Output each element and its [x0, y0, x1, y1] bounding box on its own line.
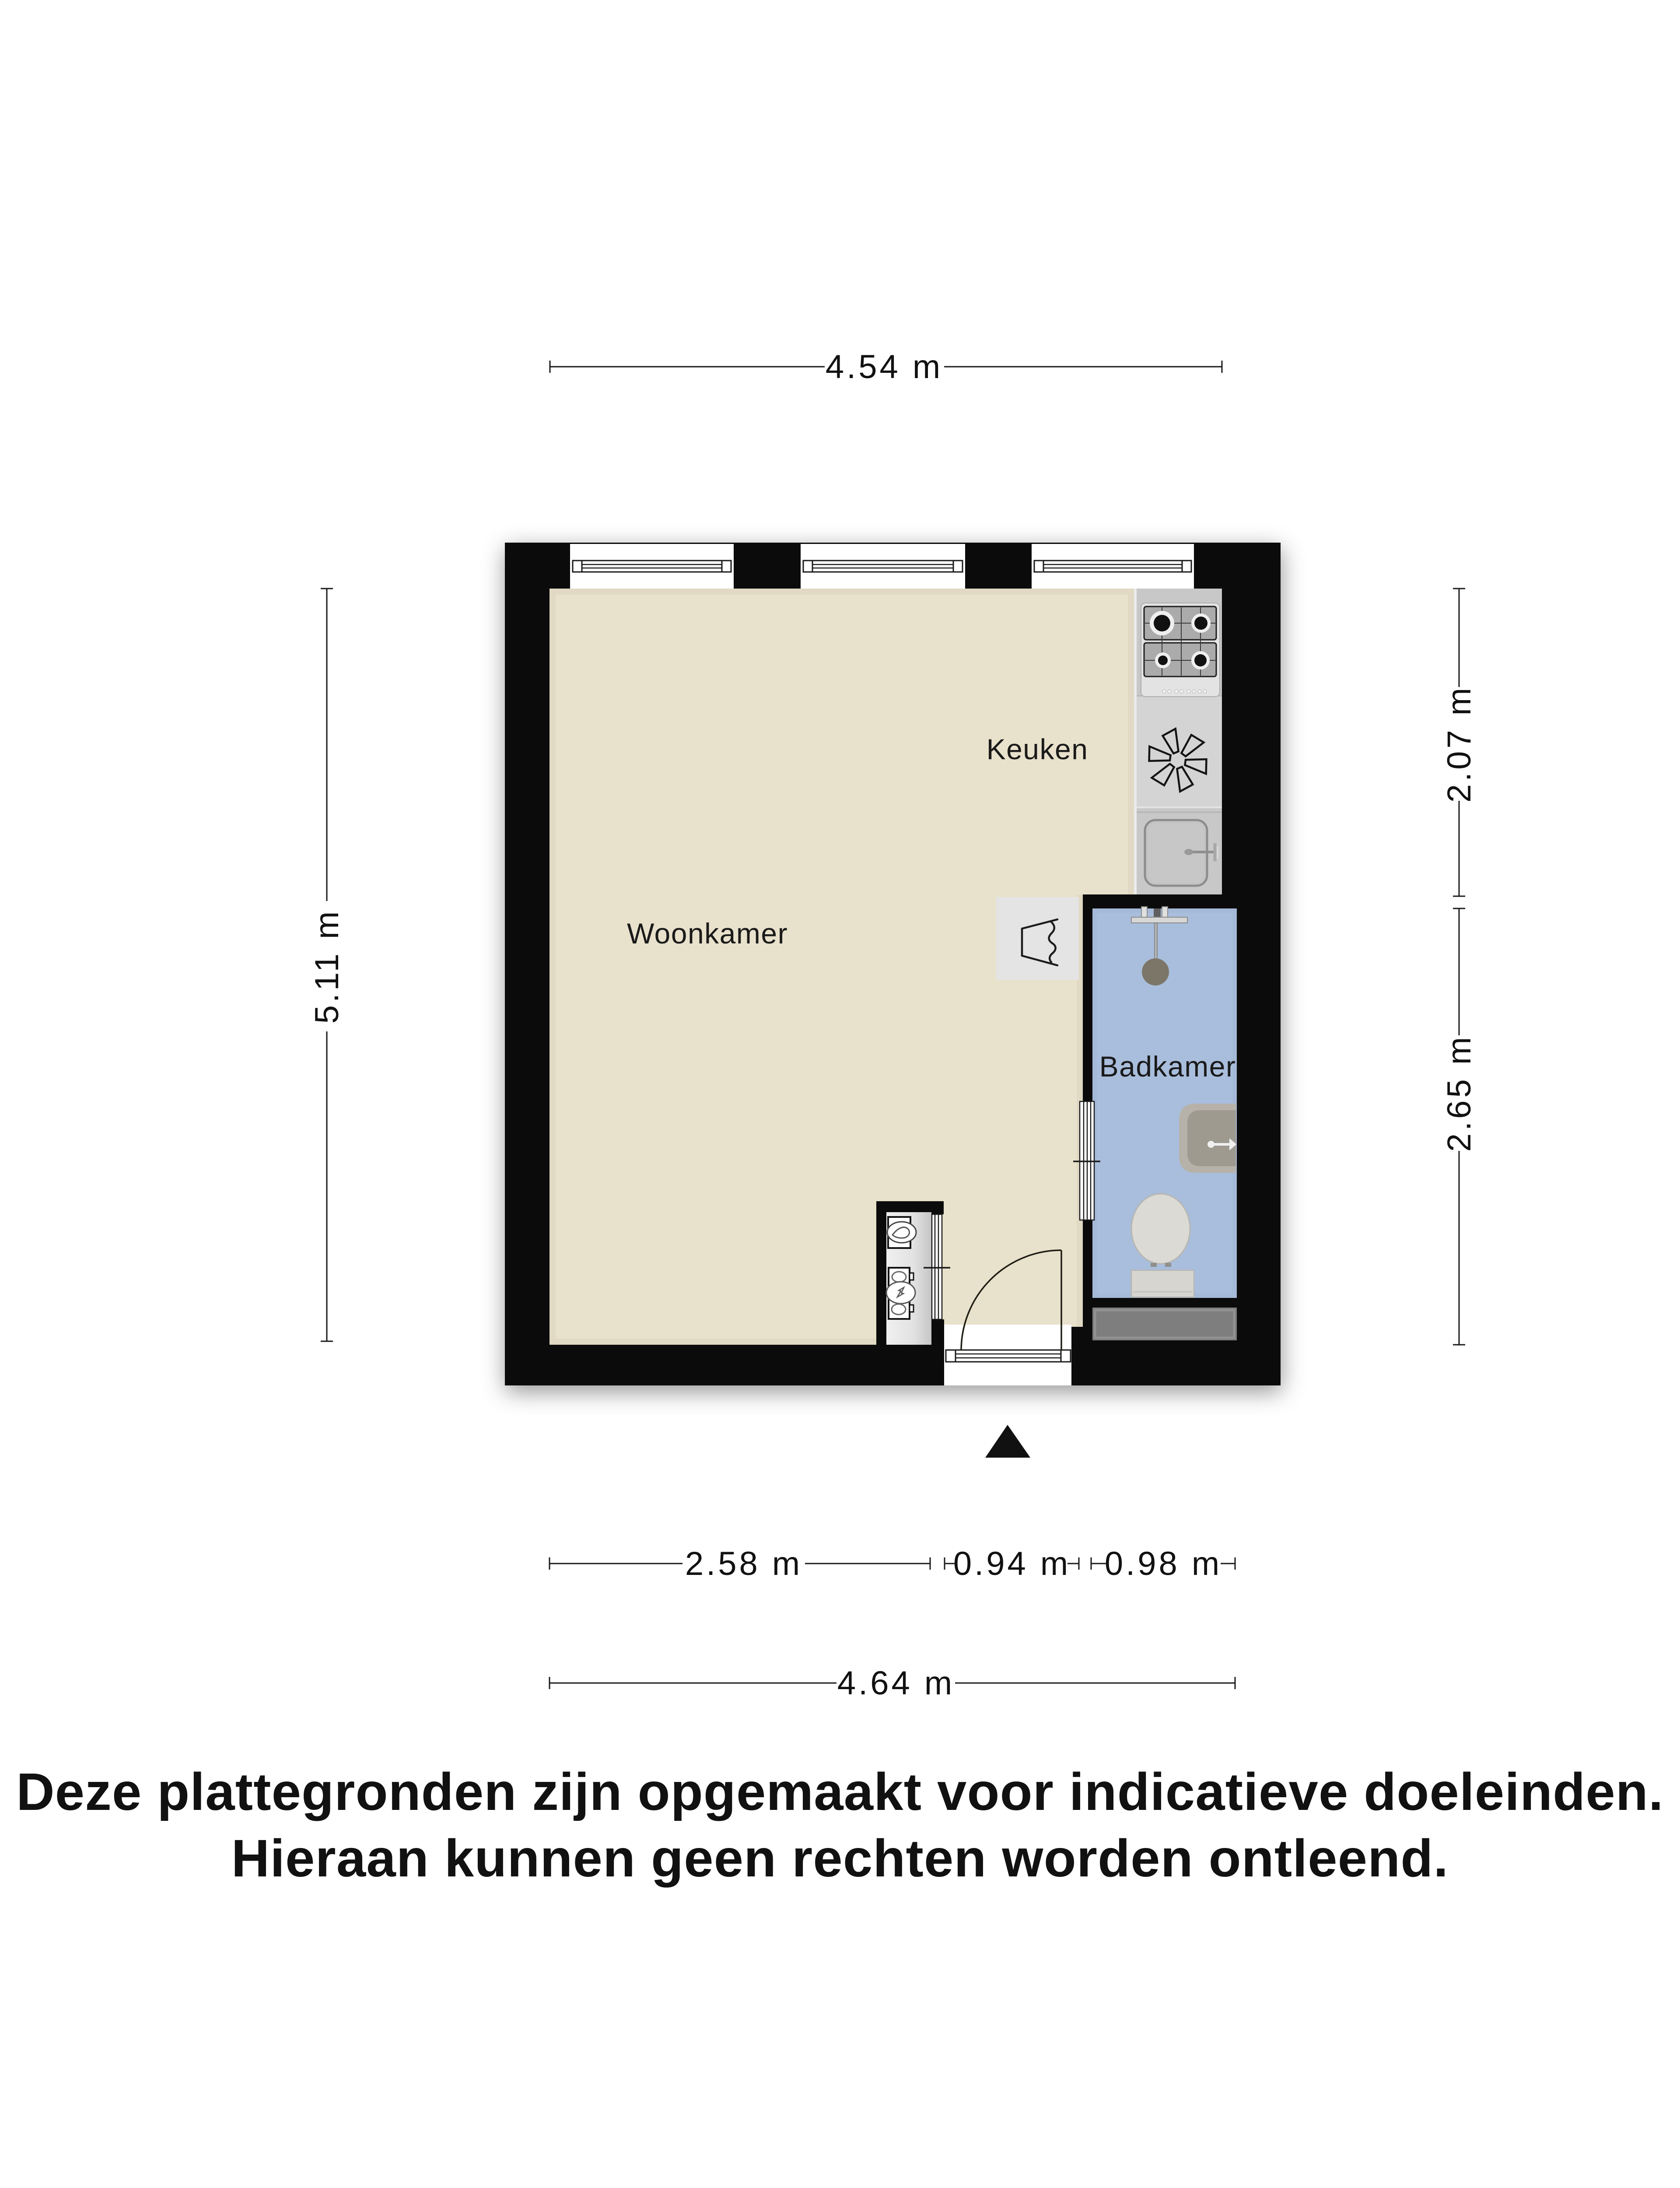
svg-text:Keuken: Keuken — [987, 733, 1088, 765]
svg-text:0.98 m: 0.98 m — [1105, 1545, 1222, 1582]
svg-text:5.11 m: 5.11 m — [308, 909, 346, 1024]
svg-text:Badkamer: Badkamer — [1099, 1050, 1236, 1083]
svg-text:Deze plattegronden zijn opgema: Deze plattegronden zijn opgemaakt voor i… — [16, 1762, 1664, 1821]
svg-text:Hieraan kunnen geen rechten wo: Hieraan kunnen geen rechten worden ontle… — [231, 1828, 1449, 1888]
svg-text:Woonkamer: Woonkamer — [627, 917, 788, 950]
svg-text:2.07 m: 2.07 m — [1441, 685, 1478, 803]
svg-text:2.65 m: 2.65 m — [1441, 1034, 1478, 1152]
svg-text:0.94 m: 0.94 m — [953, 1545, 1071, 1582]
svg-text:2.58 m: 2.58 m — [685, 1545, 802, 1582]
svg-text:4.54 m: 4.54 m — [826, 348, 943, 386]
svg-text:4.64 m: 4.64 m — [837, 1665, 955, 1702]
